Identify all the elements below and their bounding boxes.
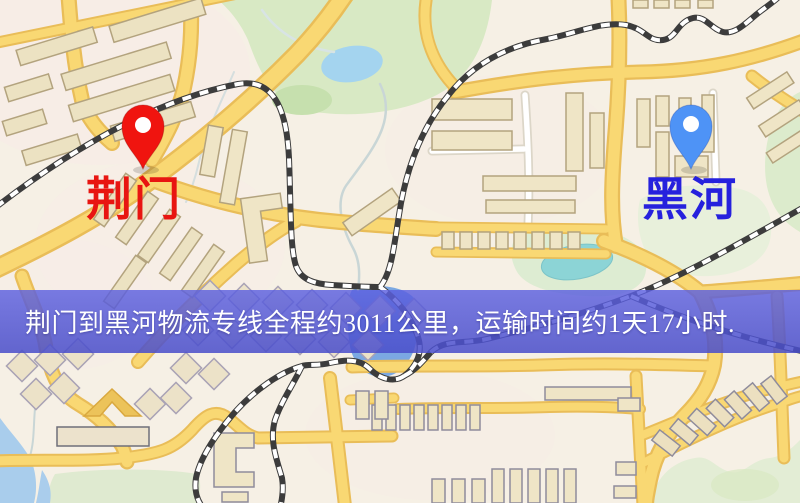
map-canvas: 荆门 黑河 荆门到黑河物流专线全程约3011公里，运输时间约1天17小时. — [0, 0, 800, 503]
map-artwork — [0, 0, 800, 503]
route-info-text: 荆门到黑河物流专线全程约3011公里，运输时间约1天17小时. — [25, 303, 735, 340]
origin-city-label: 荆门 — [86, 177, 182, 223]
route-info-banner: 荆门到黑河物流专线全程约3011公里，运输时间约1天17小时. — [0, 290, 800, 353]
destination-city-label: 黑河 — [642, 177, 738, 223]
